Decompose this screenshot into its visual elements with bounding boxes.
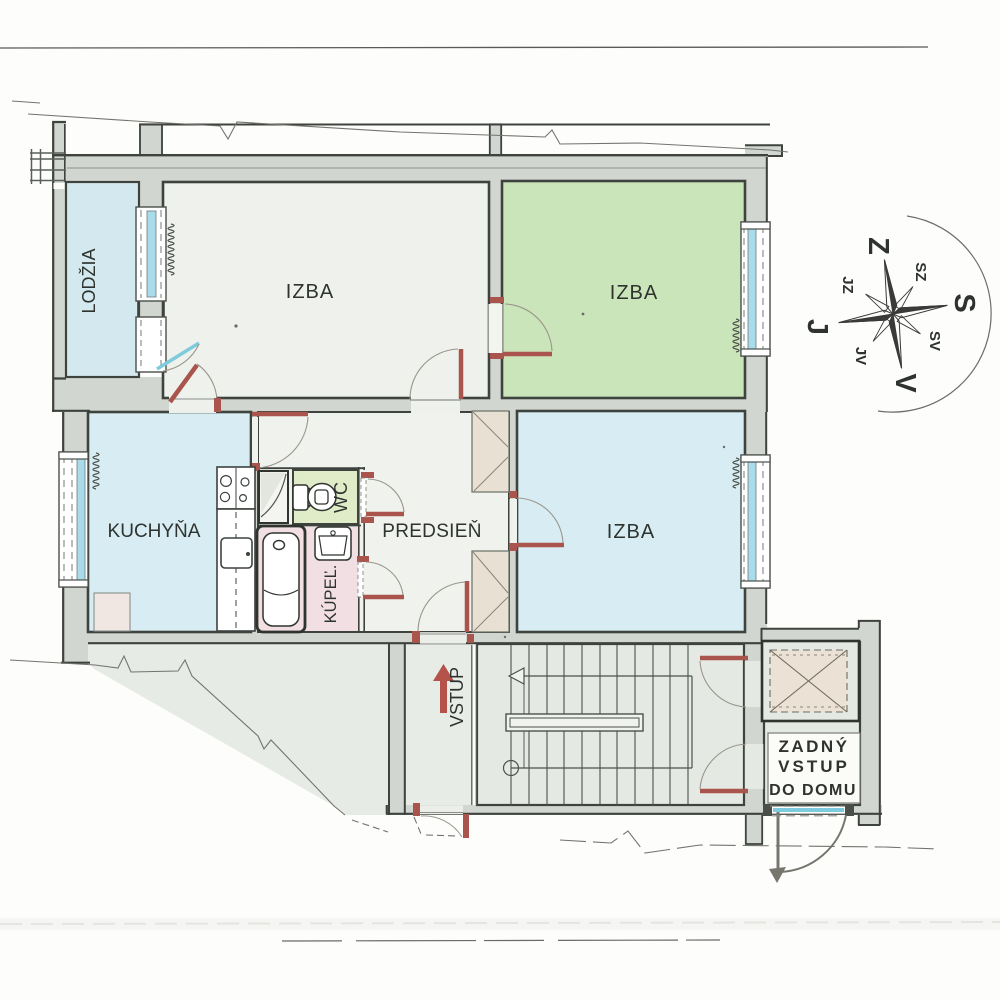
svg-text:J: J <box>801 319 833 335</box>
svg-text:VSTUP: VSTUP <box>447 667 467 727</box>
svg-text:PREDSIEŇ: PREDSIEŇ <box>382 520 482 542</box>
svg-text:IZBA: IZBA <box>610 282 658 304</box>
svg-text:KUCHYŇA: KUCHYŇA <box>108 520 201 542</box>
svg-text:JZ: JZ <box>839 276 856 294</box>
svg-text:V: V <box>889 373 921 393</box>
svg-text:JV: JV <box>852 347 869 365</box>
svg-text:KÚPEĽ.: KÚPEĽ. <box>321 565 340 624</box>
svg-text:ZADNÝ: ZADNÝ <box>778 737 849 756</box>
svg-text:S: S <box>948 293 980 312</box>
svg-text:IZBA: IZBA <box>607 521 655 543</box>
svg-text:SZ: SZ <box>912 262 929 281</box>
svg-text:IZBA: IZBA <box>286 281 334 303</box>
svg-text:Z: Z <box>862 237 894 255</box>
svg-text:WC: WC <box>331 481 351 513</box>
svg-text:VSTUP: VSTUP <box>778 757 850 776</box>
svg-text:LODŽIA: LODŽIA <box>79 248 99 313</box>
svg-text:SV: SV <box>926 331 943 351</box>
svg-text:DO DOMU: DO DOMU <box>769 782 857 799</box>
